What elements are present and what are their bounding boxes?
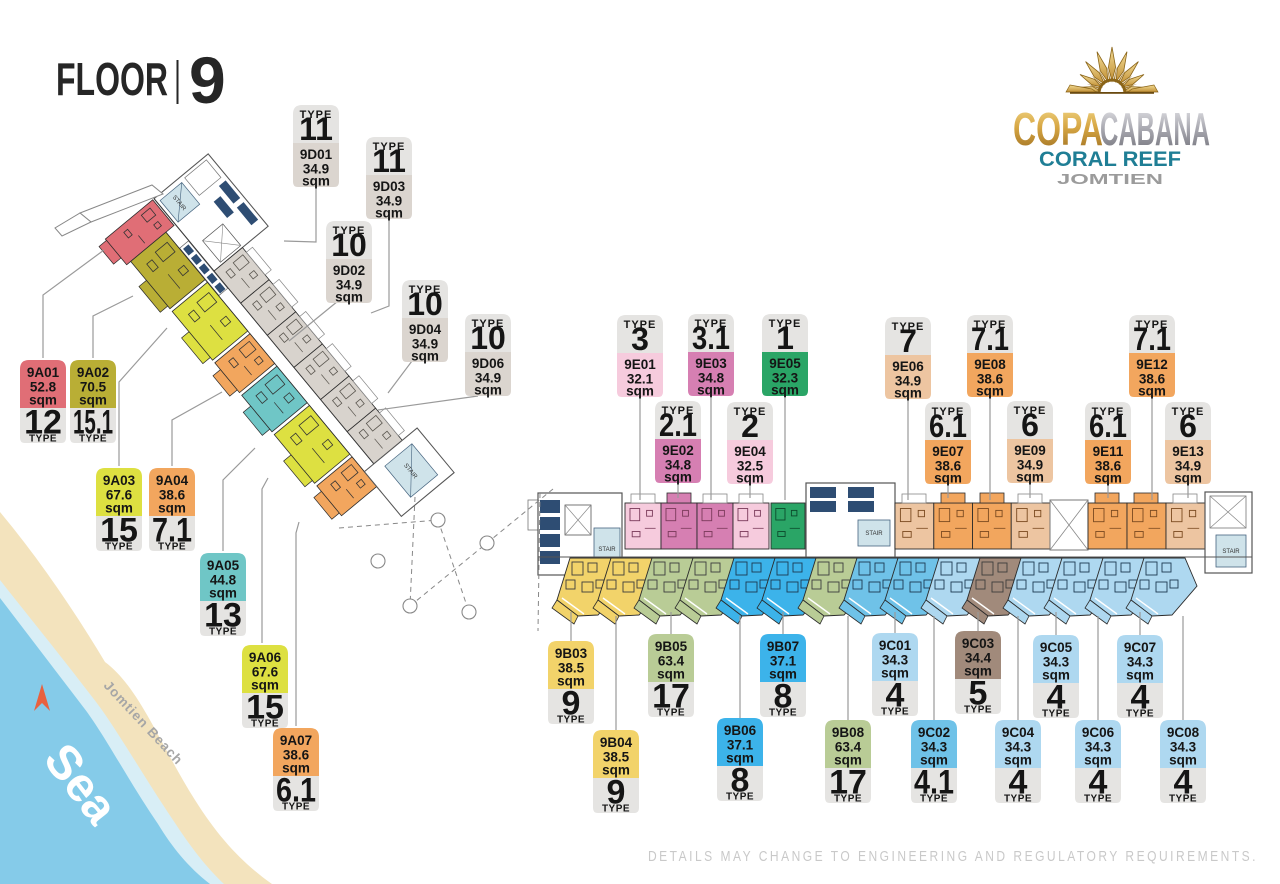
svg-text:11: 11 xyxy=(299,111,333,147)
svg-text:9B04: 9B04 xyxy=(600,735,633,750)
svg-text:sqm: sqm xyxy=(375,206,403,221)
svg-text:sqm: sqm xyxy=(894,386,922,401)
svg-text:9D01: 9D01 xyxy=(300,147,333,162)
svg-text:10: 10 xyxy=(407,286,443,322)
svg-text:9D06: 9D06 xyxy=(472,356,505,371)
svg-text:9B05: 9B05 xyxy=(655,639,688,654)
svg-text:TYPE: TYPE xyxy=(105,542,133,553)
svg-text:TYPE: TYPE xyxy=(1042,709,1070,720)
svg-text:10: 10 xyxy=(331,227,367,263)
svg-text:sqm: sqm xyxy=(697,383,725,398)
svg-text:3: 3 xyxy=(631,321,649,357)
svg-text:9E05: 9E05 xyxy=(769,356,801,371)
svg-text:11: 11 xyxy=(372,143,406,179)
svg-text:9E01: 9E01 xyxy=(624,357,656,372)
svg-text:9E13: 9E13 xyxy=(1172,444,1204,459)
svg-text:sqm: sqm xyxy=(934,471,962,486)
svg-text:6.1: 6.1 xyxy=(929,408,967,444)
svg-text:9E03: 9E03 xyxy=(695,356,727,371)
svg-text:TYPE: TYPE xyxy=(282,802,310,813)
svg-text:TYPE: TYPE xyxy=(557,715,585,726)
svg-text:sqm: sqm xyxy=(976,384,1004,399)
svg-text:TYPE: TYPE xyxy=(79,434,107,445)
svg-text:TYPE: TYPE xyxy=(657,708,685,719)
svg-text:TYPE: TYPE xyxy=(1004,794,1032,805)
svg-text:1: 1 xyxy=(776,320,794,356)
svg-text:9E02: 9E02 xyxy=(662,443,694,458)
svg-text:JOMTIEN: JOMTIEN xyxy=(1057,171,1163,188)
svg-text:TYPE: TYPE xyxy=(209,627,237,638)
svg-text:CORAL REEF: CORAL REEF xyxy=(1039,148,1181,171)
svg-text:TYPE: TYPE xyxy=(964,705,992,716)
svg-text:DETAILS MAY CHANGE TO ENGINEER: DETAILS MAY CHANGE TO ENGINEERING AND RE… xyxy=(648,849,1258,865)
svg-text:9E04: 9E04 xyxy=(734,444,766,459)
svg-text:sqm: sqm xyxy=(1174,471,1202,486)
svg-text:sqm: sqm xyxy=(411,349,439,364)
svg-text:TYPE: TYPE xyxy=(881,707,909,718)
svg-text:sqm: sqm xyxy=(1016,470,1044,485)
svg-text:TYPE: TYPE xyxy=(158,542,186,553)
svg-text:STAIR: STAIR xyxy=(598,547,616,553)
svg-text:9A04: 9A04 xyxy=(156,473,189,488)
svg-text:sqm: sqm xyxy=(1138,384,1166,399)
svg-text:sqm: sqm xyxy=(474,383,502,398)
svg-text:TYPE: TYPE xyxy=(251,719,279,730)
svg-text:9A07: 9A07 xyxy=(280,733,312,748)
svg-text:9A03: 9A03 xyxy=(103,473,136,488)
svg-text:2.1: 2.1 xyxy=(659,407,697,443)
svg-text:9B08: 9B08 xyxy=(832,725,865,740)
svg-text:sqm: sqm xyxy=(736,471,764,486)
svg-text:10: 10 xyxy=(470,320,506,356)
svg-text:TYPE: TYPE xyxy=(726,792,754,803)
svg-text:sqm: sqm xyxy=(1094,471,1122,486)
svg-text:sqm: sqm xyxy=(335,290,363,305)
svg-text:9C05: 9C05 xyxy=(1040,640,1073,655)
svg-text:STAIR: STAIR xyxy=(1222,549,1240,555)
svg-text:9C06: 9C06 xyxy=(1082,725,1115,740)
svg-text:9C07: 9C07 xyxy=(1124,640,1156,655)
svg-text:TYPE: TYPE xyxy=(1084,794,1112,805)
svg-text:9D03: 9D03 xyxy=(373,179,406,194)
svg-text:TYPE: TYPE xyxy=(1169,794,1197,805)
svg-text:TYPE: TYPE xyxy=(602,804,630,815)
svg-text:9E06: 9E06 xyxy=(892,359,924,374)
svg-text:9A02: 9A02 xyxy=(77,365,109,380)
svg-text:9E12: 9E12 xyxy=(1136,357,1168,372)
svg-text:TYPE: TYPE xyxy=(29,434,57,445)
svg-text:3.1: 3.1 xyxy=(692,320,730,356)
svg-text:6.1: 6.1 xyxy=(1089,408,1127,444)
svg-text:9B07: 9B07 xyxy=(767,639,799,654)
svg-text:TYPE: TYPE xyxy=(769,708,797,719)
svg-text:9C03: 9C03 xyxy=(962,636,995,651)
svg-text:7: 7 xyxy=(899,323,917,359)
svg-text:9B03: 9B03 xyxy=(555,646,588,661)
svg-text:sqm: sqm xyxy=(626,384,654,399)
svg-text:9C04: 9C04 xyxy=(1002,725,1035,740)
svg-text:2: 2 xyxy=(741,408,759,444)
svg-text:FLOOR: FLOOR xyxy=(56,53,168,105)
svg-text:9A05: 9A05 xyxy=(207,558,240,573)
svg-text:TYPE: TYPE xyxy=(834,794,862,805)
svg-text:9D04: 9D04 xyxy=(409,322,442,337)
svg-text:9A01: 9A01 xyxy=(27,365,60,380)
svg-text:9D02: 9D02 xyxy=(333,263,365,278)
svg-text:9: 9 xyxy=(189,43,226,117)
svg-text:sqm: sqm xyxy=(302,174,330,189)
svg-text:7.1: 7.1 xyxy=(1133,321,1171,357)
svg-text:9A06: 9A06 xyxy=(249,650,282,665)
svg-text:sqm: sqm xyxy=(771,383,799,398)
svg-text:TYPE: TYPE xyxy=(920,794,948,805)
svg-text:9B06: 9B06 xyxy=(724,723,757,738)
svg-text:STAIR: STAIR xyxy=(865,531,883,537)
svg-text:sqm: sqm xyxy=(664,470,692,485)
svg-text:9C01: 9C01 xyxy=(879,638,912,653)
svg-text:9C08: 9C08 xyxy=(1167,725,1200,740)
svg-text:9E08: 9E08 xyxy=(974,357,1006,372)
svg-text:9E11: 9E11 xyxy=(1093,444,1124,459)
svg-text:TYPE: TYPE xyxy=(1126,709,1154,720)
svg-text:9C02: 9C02 xyxy=(918,725,950,740)
svg-text:9E09: 9E09 xyxy=(1014,443,1046,458)
svg-text:6: 6 xyxy=(1021,407,1039,443)
svg-text:9E07: 9E07 xyxy=(932,444,964,459)
svg-text:6: 6 xyxy=(1179,408,1197,444)
svg-text:7.1: 7.1 xyxy=(971,321,1009,357)
